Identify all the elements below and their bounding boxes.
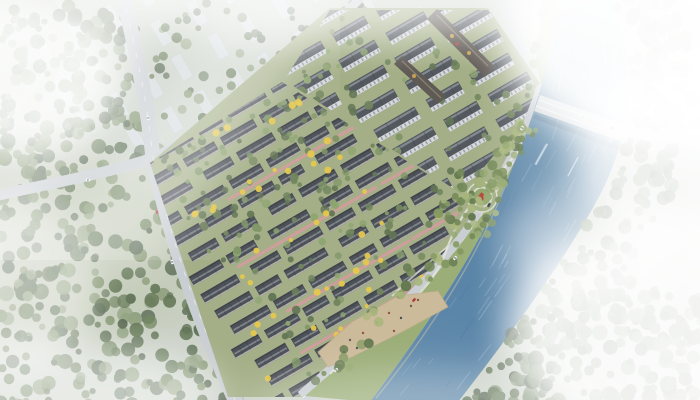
aerial-rendering bbox=[0, 0, 700, 400]
rendering-canvas bbox=[0, 0, 700, 400]
atmosphere-veil bbox=[0, 0, 700, 400]
